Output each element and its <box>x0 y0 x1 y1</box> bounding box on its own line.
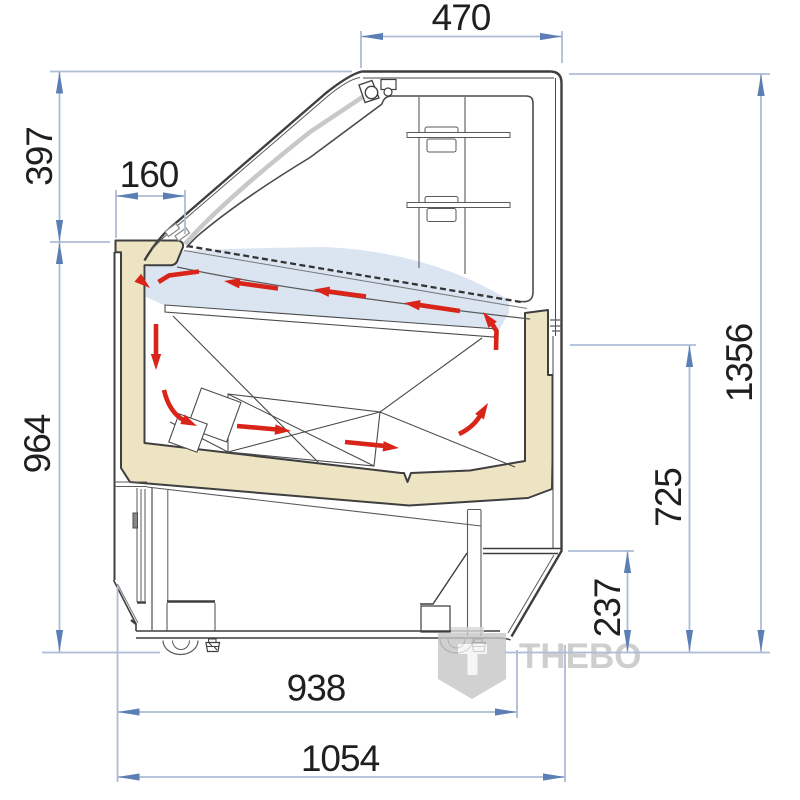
svg-text:725: 725 <box>648 468 689 527</box>
svg-text:470: 470 <box>432 0 491 38</box>
svg-text:237: 237 <box>587 579 628 638</box>
svg-text:THEBO: THEBO <box>519 637 642 676</box>
svg-text:964: 964 <box>17 414 58 473</box>
svg-text:938: 938 <box>287 668 346 709</box>
svg-text:1054: 1054 <box>301 738 380 779</box>
svg-text:1356: 1356 <box>719 324 760 402</box>
svg-text:160: 160 <box>120 154 179 195</box>
svg-text:397: 397 <box>19 127 60 186</box>
